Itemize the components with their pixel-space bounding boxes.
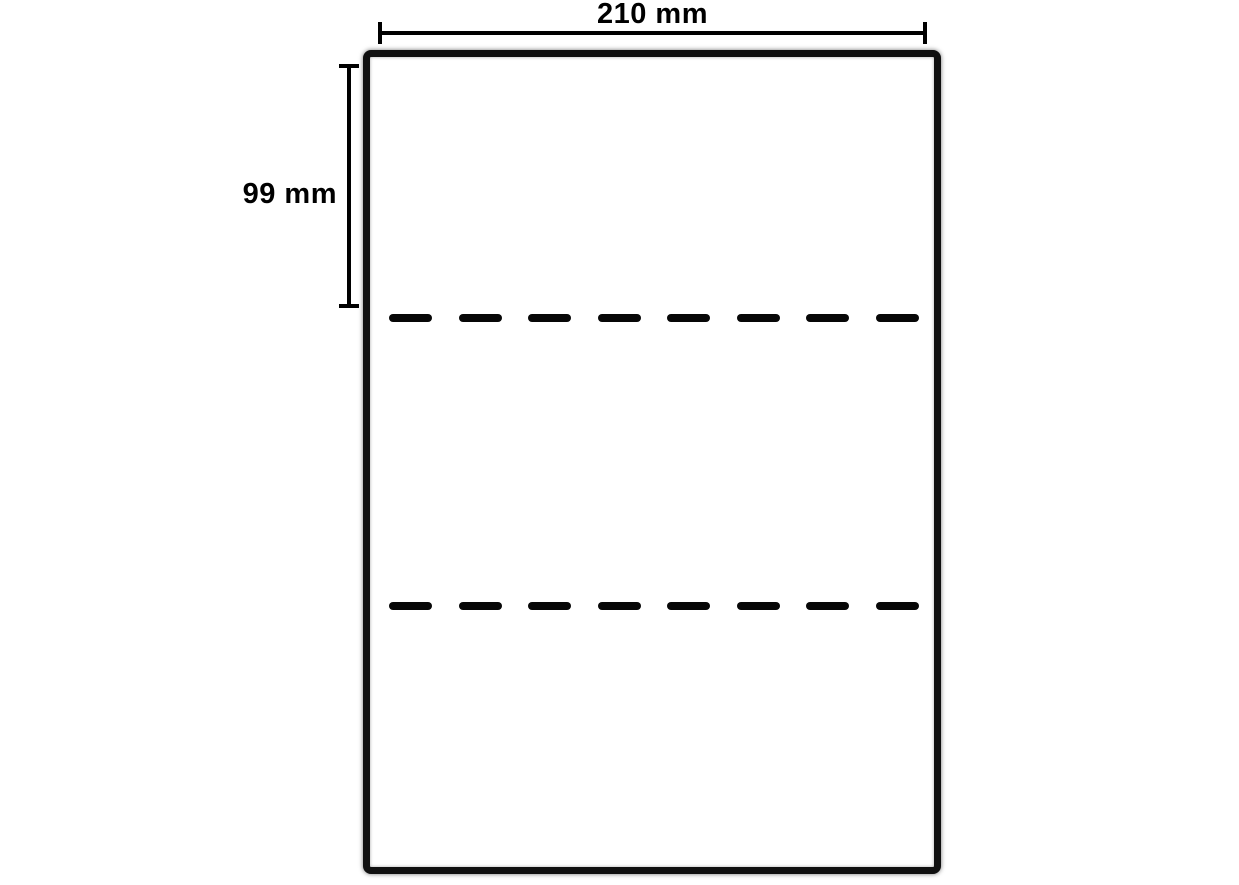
section-height-dimension-tick-bottom bbox=[339, 304, 359, 308]
perforation-dash bbox=[459, 602, 502, 610]
perforation-dash bbox=[806, 602, 849, 610]
width-dimension-label: 210 mm bbox=[380, 0, 925, 31]
perforation-dash bbox=[876, 602, 919, 610]
width-dimension-line bbox=[380, 31, 925, 35]
width-dimension-tick-left bbox=[378, 22, 382, 44]
width-dimension-tick-right bbox=[923, 22, 927, 44]
perforation-dash bbox=[876, 314, 919, 322]
perforation-dash bbox=[528, 314, 571, 322]
perforation-dash bbox=[737, 602, 780, 610]
perforation-dash bbox=[598, 314, 641, 322]
perforation-dash bbox=[806, 314, 849, 322]
perforation-dash bbox=[667, 314, 710, 322]
perforation-dash bbox=[389, 314, 432, 322]
perforation-line-1 bbox=[389, 314, 919, 322]
perforation-line-2 bbox=[389, 602, 919, 610]
sheet-outline bbox=[363, 50, 941, 874]
perforation-dash bbox=[389, 602, 432, 610]
perforation-dash bbox=[528, 602, 571, 610]
section-height-dimension-tick-top bbox=[339, 64, 359, 68]
perforation-dash bbox=[737, 314, 780, 322]
section-height-dimension-label: 99 mm bbox=[222, 178, 337, 211]
section-height-dimension-line bbox=[347, 66, 351, 308]
perforation-dash bbox=[667, 602, 710, 610]
perforation-dash bbox=[598, 602, 641, 610]
diagram-canvas: 210 mm 99 mm bbox=[0, 0, 1239, 885]
perforation-dash bbox=[459, 314, 502, 322]
